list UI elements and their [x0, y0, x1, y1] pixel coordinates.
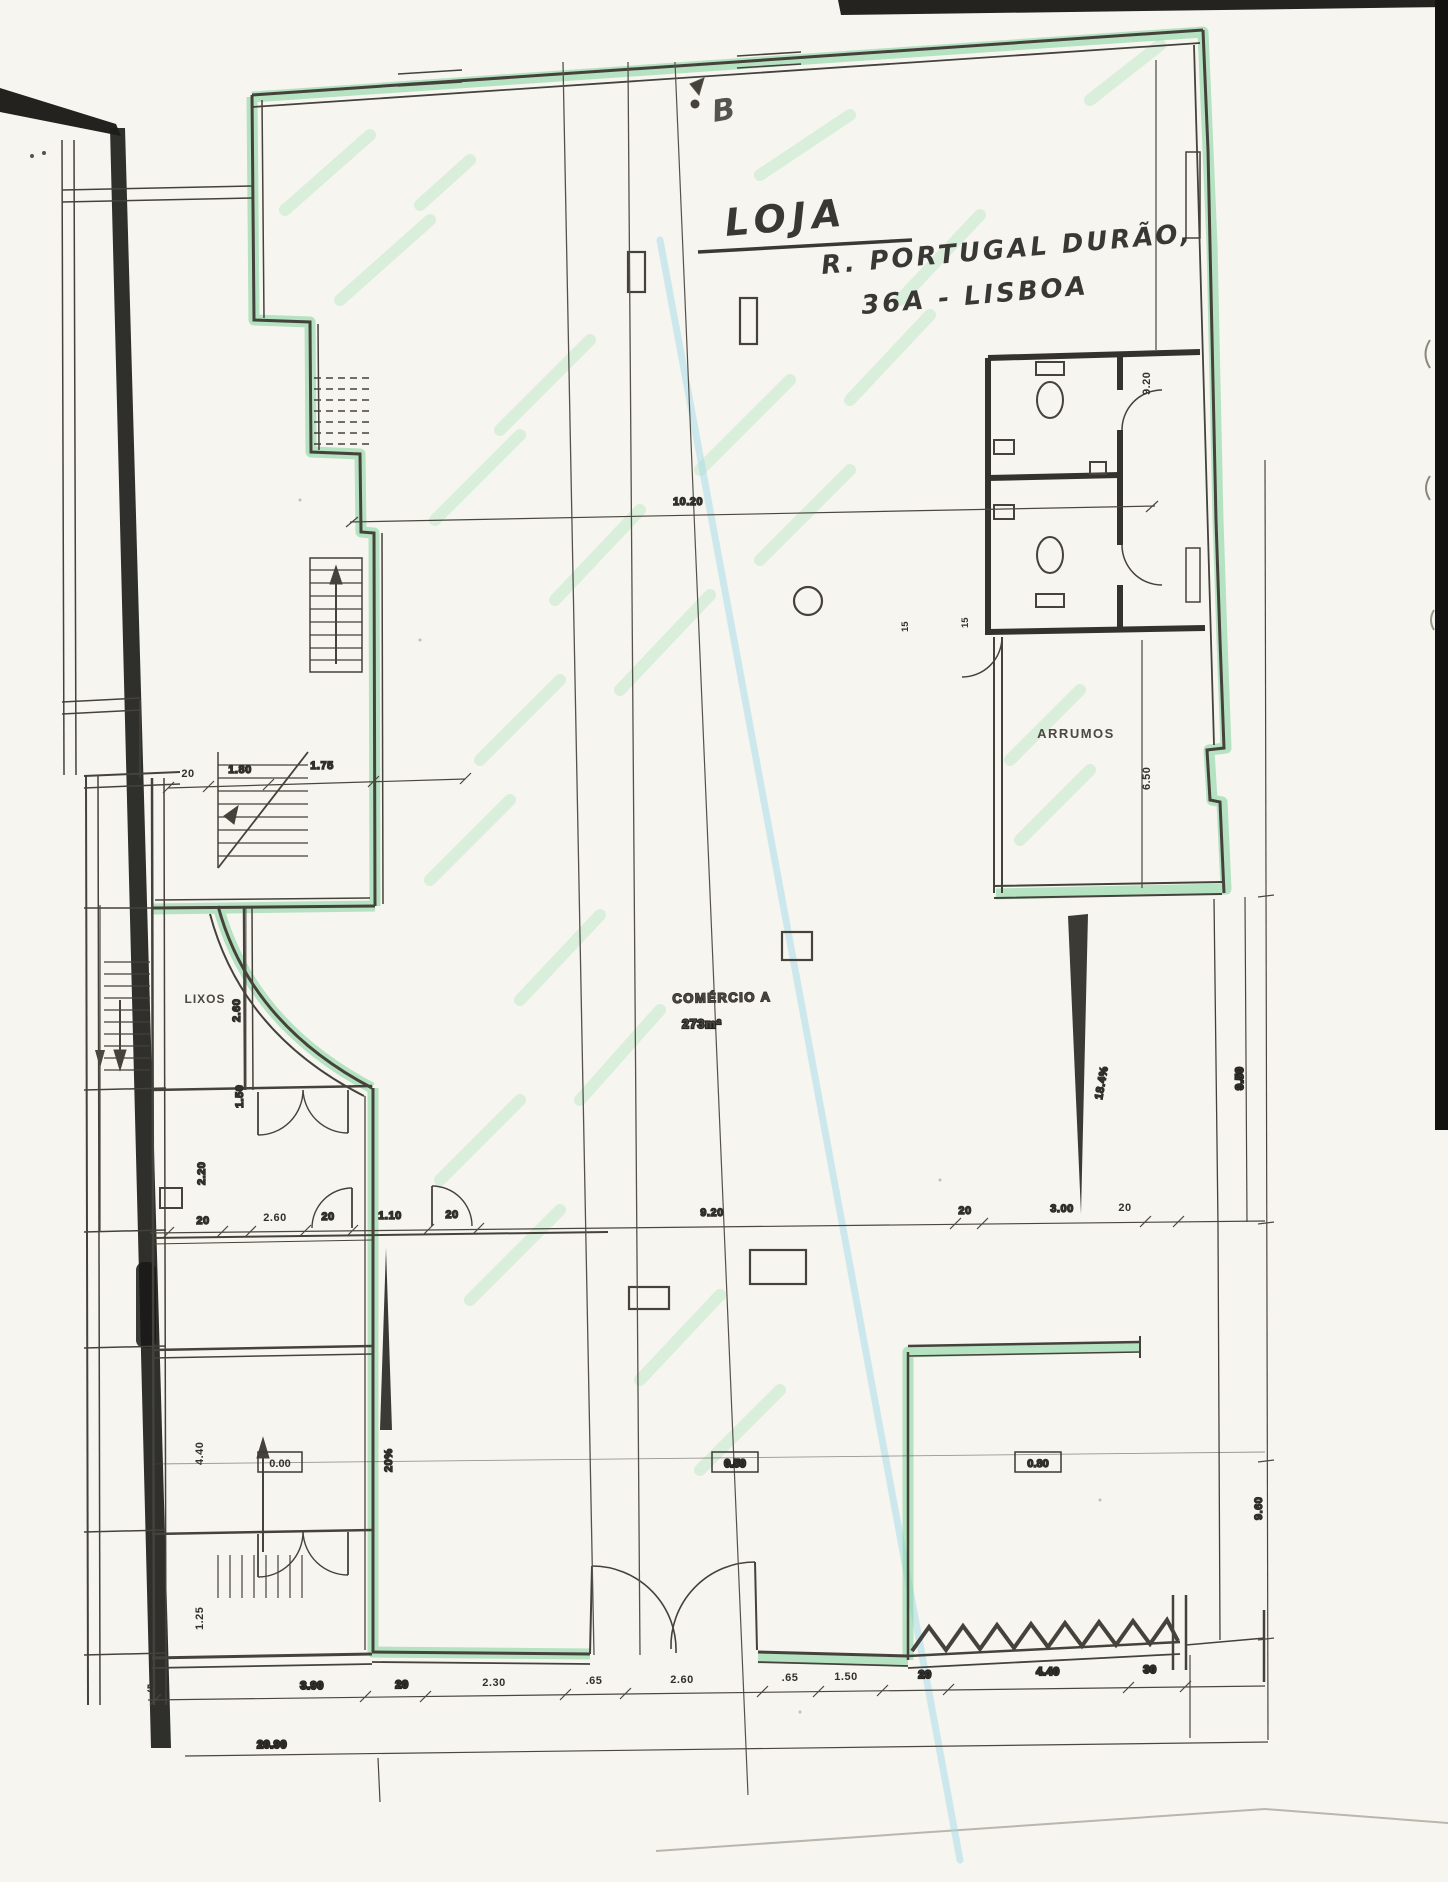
dimension-label: 3.00 [1050, 1203, 1073, 1215]
dimension-label: 9.50 [1234, 1067, 1246, 1090]
toilet-tank [1036, 362, 1064, 375]
sink-icon [994, 505, 1014, 519]
ramp-arrow [380, 1248, 392, 1430]
door-arc [962, 637, 1002, 677]
stair-direction-arrow [224, 806, 238, 824]
dimension-label: .65 [782, 1672, 799, 1684]
door-arc [258, 1532, 303, 1577]
door-leaf [590, 1566, 592, 1654]
dimension-label: 15 [900, 621, 911, 632]
dimension-label: 20 [321, 1211, 334, 1223]
handwritten-annotations: LOJA R. PORTUGAL DURÃO, 36A - LISBOA B [698, 91, 1194, 321]
toilet-icon [1037, 382, 1063, 418]
dimension-label: 1.10 [378, 1210, 401, 1222]
level-value: 0.50 [724, 1458, 745, 1470]
dimension-label: 20 [445, 1209, 458, 1221]
door-arc [592, 1566, 676, 1653]
dimension-label: 6.50 [1141, 767, 1153, 790]
stairs-mid-left [310, 558, 362, 672]
dimension-label: 5 [147, 1683, 154, 1695]
section-marker-label: B [709, 91, 738, 129]
section-line [675, 62, 748, 1795]
stair-direction-arrow [114, 1050, 126, 1070]
sink-icon [994, 440, 1014, 454]
dimension-label: 20 [196, 1215, 209, 1227]
handwritten-title: LOJA [723, 190, 849, 245]
door-leaf [755, 1562, 757, 1650]
zigzag-shutter-wall [912, 1620, 1178, 1651]
highlighter-cyan-stroke [660, 240, 960, 1860]
stair-direction-arrow [257, 1438, 269, 1458]
dimension-label: 4.40 [194, 1442, 206, 1465]
door-arc [1122, 545, 1162, 585]
dimension-label: 1.50 [234, 1085, 246, 1108]
door-arc [303, 1090, 348, 1133]
dimension-label: .65 [586, 1675, 603, 1687]
dimension-label: 1.50 [834, 1671, 857, 1683]
dimension-label: 10.20 [673, 496, 703, 508]
door-arc [258, 1090, 303, 1135]
dimension-label: 3.90 [300, 1680, 323, 1692]
dimension-label: 1.80 [228, 764, 251, 776]
scan-artifacts [0, 0, 1448, 1851]
sink-icon [1090, 462, 1106, 474]
dimension-label: 20.90 [257, 1739, 287, 1751]
dimension-label: 2.60 [670, 1674, 693, 1686]
slope-and-level-labels: 20% 18.4% 0.00 0.50 0.80 [269, 1065, 1111, 1472]
door-arc [671, 1562, 755, 1649]
dimension-label: 20 [395, 1679, 408, 1691]
dimension-label: 30 [1143, 1664, 1156, 1676]
dimension-label: 20 [958, 1205, 971, 1217]
dimension-label: 2.20 [196, 1162, 208, 1185]
room-label-lixos: LIXOS [184, 992, 225, 1006]
doors [258, 1090, 757, 1654]
dimension-label: 20 [181, 768, 194, 780]
scanned-floor-plan-page: 10.20 20 1.80 1.75 9.20 6.50 9.50 9.60 2… [0, 0, 1448, 1882]
column [629, 1287, 669, 1309]
wc-block-walls [988, 352, 1205, 635]
dimension-label: 9.20 [700, 1207, 723, 1219]
room-label-arrumos: ARRUMOS [1037, 726, 1115, 741]
dimension-label: 1.75 [310, 760, 333, 772]
dimension-label: 2.60 [231, 999, 243, 1022]
dimension-label: 2.30 [482, 1677, 505, 1689]
section-arrow [690, 78, 704, 95]
door-arc [303, 1532, 348, 1575]
stairs-top-left-hatch [314, 378, 372, 444]
column [628, 252, 645, 292]
ramp-slope-label: 20% [383, 1448, 395, 1472]
dimension-label: 4.40 [1036, 1666, 1059, 1678]
level-value: 0.80 [1027, 1458, 1048, 1470]
ramp-slope-label: 18.4% [1093, 1065, 1111, 1100]
toilet-tank [1036, 594, 1064, 607]
dimension-label: 2.60 [263, 1212, 286, 1224]
floor-plan-scan: 10.20 20 1.80 1.75 9.20 6.50 9.50 9.60 2… [0, 0, 1448, 1882]
handwritten-address: R. PORTUGAL DURÃO, [820, 217, 1194, 281]
dimension-label: 1.25 [194, 1607, 206, 1630]
column [740, 298, 757, 344]
dimension-label: 15 [960, 617, 971, 628]
room-area-label: 273m² [682, 1017, 722, 1031]
circle-symbol [794, 587, 822, 615]
handwritten-address-2: 36A - LISBOA [860, 271, 1090, 321]
dimension-label: 20 [1118, 1202, 1131, 1214]
ramp-arrow [1068, 914, 1088, 1214]
dimension-label: 9.60 [1253, 1497, 1265, 1520]
dimension-label: 9.20 [1141, 372, 1153, 395]
dimension-labels: 10.20 20 1.80 1.75 9.20 6.50 9.50 9.60 2… [147, 372, 1265, 1751]
door-arc [1122, 390, 1162, 430]
toilet-icon [1037, 537, 1063, 573]
level-value: 0.00 [269, 1458, 290, 1470]
columns-and-symbols [628, 252, 822, 1309]
room-label-comercio: COMÉRCIO A [672, 989, 771, 1006]
column [750, 1250, 806, 1284]
stair-direction-arrow [330, 566, 342, 584]
dimension-label: 20 [918, 1669, 931, 1681]
